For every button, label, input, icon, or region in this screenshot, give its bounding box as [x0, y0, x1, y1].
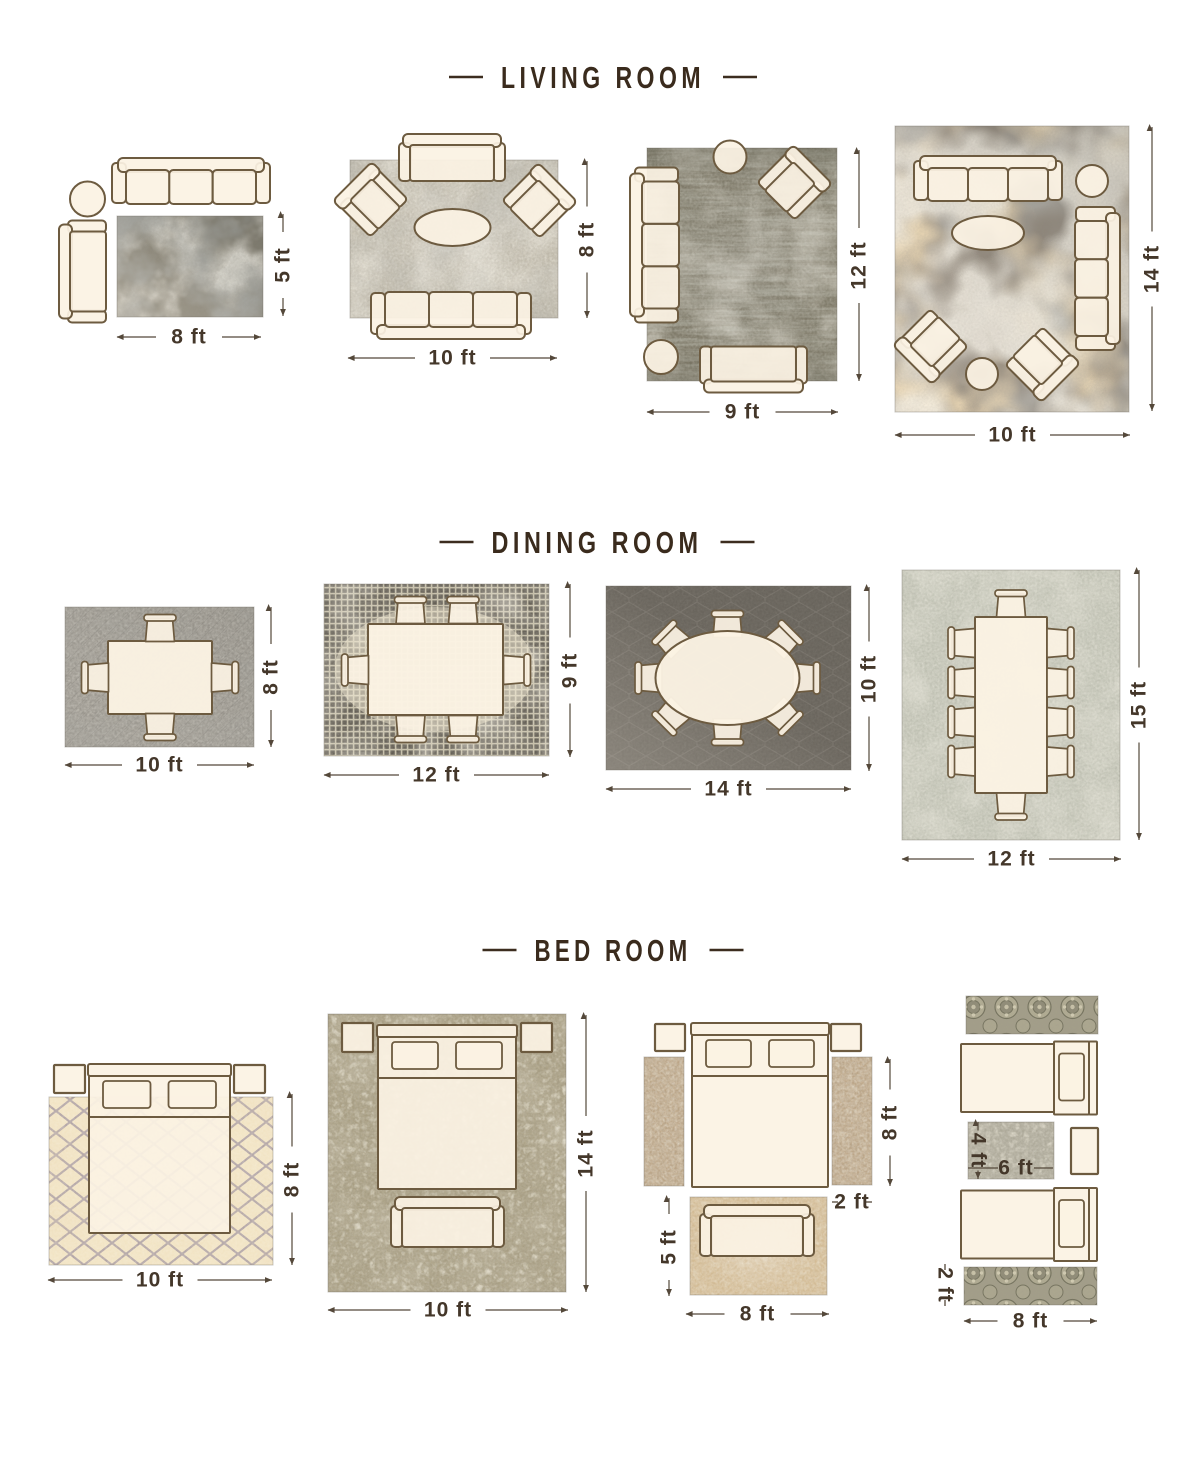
svg-text:10 ft: 10 ft [136, 1269, 184, 1292]
svg-text:DINING ROOM: DINING ROOM [492, 525, 703, 560]
svg-text:8 ft: 8 ft [879, 1105, 902, 1141]
svg-text:14 ft: 14 ft [575, 1129, 598, 1177]
svg-text:9 ft: 9 ft [725, 401, 761, 424]
svg-text:LIVING ROOM: LIVING ROOM [501, 60, 705, 95]
svg-text:8 ft: 8 ft [576, 222, 599, 258]
svg-text:12 ft: 12 ft [987, 848, 1035, 871]
svg-text:8 ft: 8 ft [171, 326, 207, 349]
svg-text:15 ft: 15 ft [1128, 681, 1151, 729]
svg-text:2 ft: 2 ft [834, 1191, 870, 1214]
svg-text:10 ft: 10 ft [988, 424, 1036, 447]
svg-text:8 ft: 8 ft [1013, 1310, 1049, 1333]
svg-text:6 ft: 6 ft [998, 1157, 1034, 1180]
svg-text:10 ft: 10 ft [135, 754, 183, 777]
svg-text:5 ft: 5 ft [658, 1229, 681, 1265]
svg-text:9 ft: 9 ft [559, 653, 582, 689]
svg-text:10 ft: 10 ft [428, 347, 476, 370]
svg-text:12 ft: 12 ft [412, 764, 460, 787]
svg-text:10 ft: 10 ft [858, 655, 881, 703]
svg-text:14 ft: 14 ft [1141, 245, 1164, 293]
svg-text:BED ROOM: BED ROOM [535, 933, 692, 968]
svg-text:8 ft: 8 ft [281, 1162, 304, 1198]
svg-text:5 ft: 5 ft [272, 247, 295, 283]
svg-text:8 ft: 8 ft [740, 1303, 776, 1326]
svg-text:10 ft: 10 ft [424, 1299, 472, 1322]
svg-text:12 ft: 12 ft [848, 241, 871, 289]
svg-text:2 ft: 2 ft [934, 1267, 957, 1303]
svg-text:14 ft: 14 ft [704, 778, 752, 801]
svg-text:4 ft: 4 ft [967, 1133, 990, 1169]
svg-text:8 ft: 8 ft [260, 659, 283, 695]
